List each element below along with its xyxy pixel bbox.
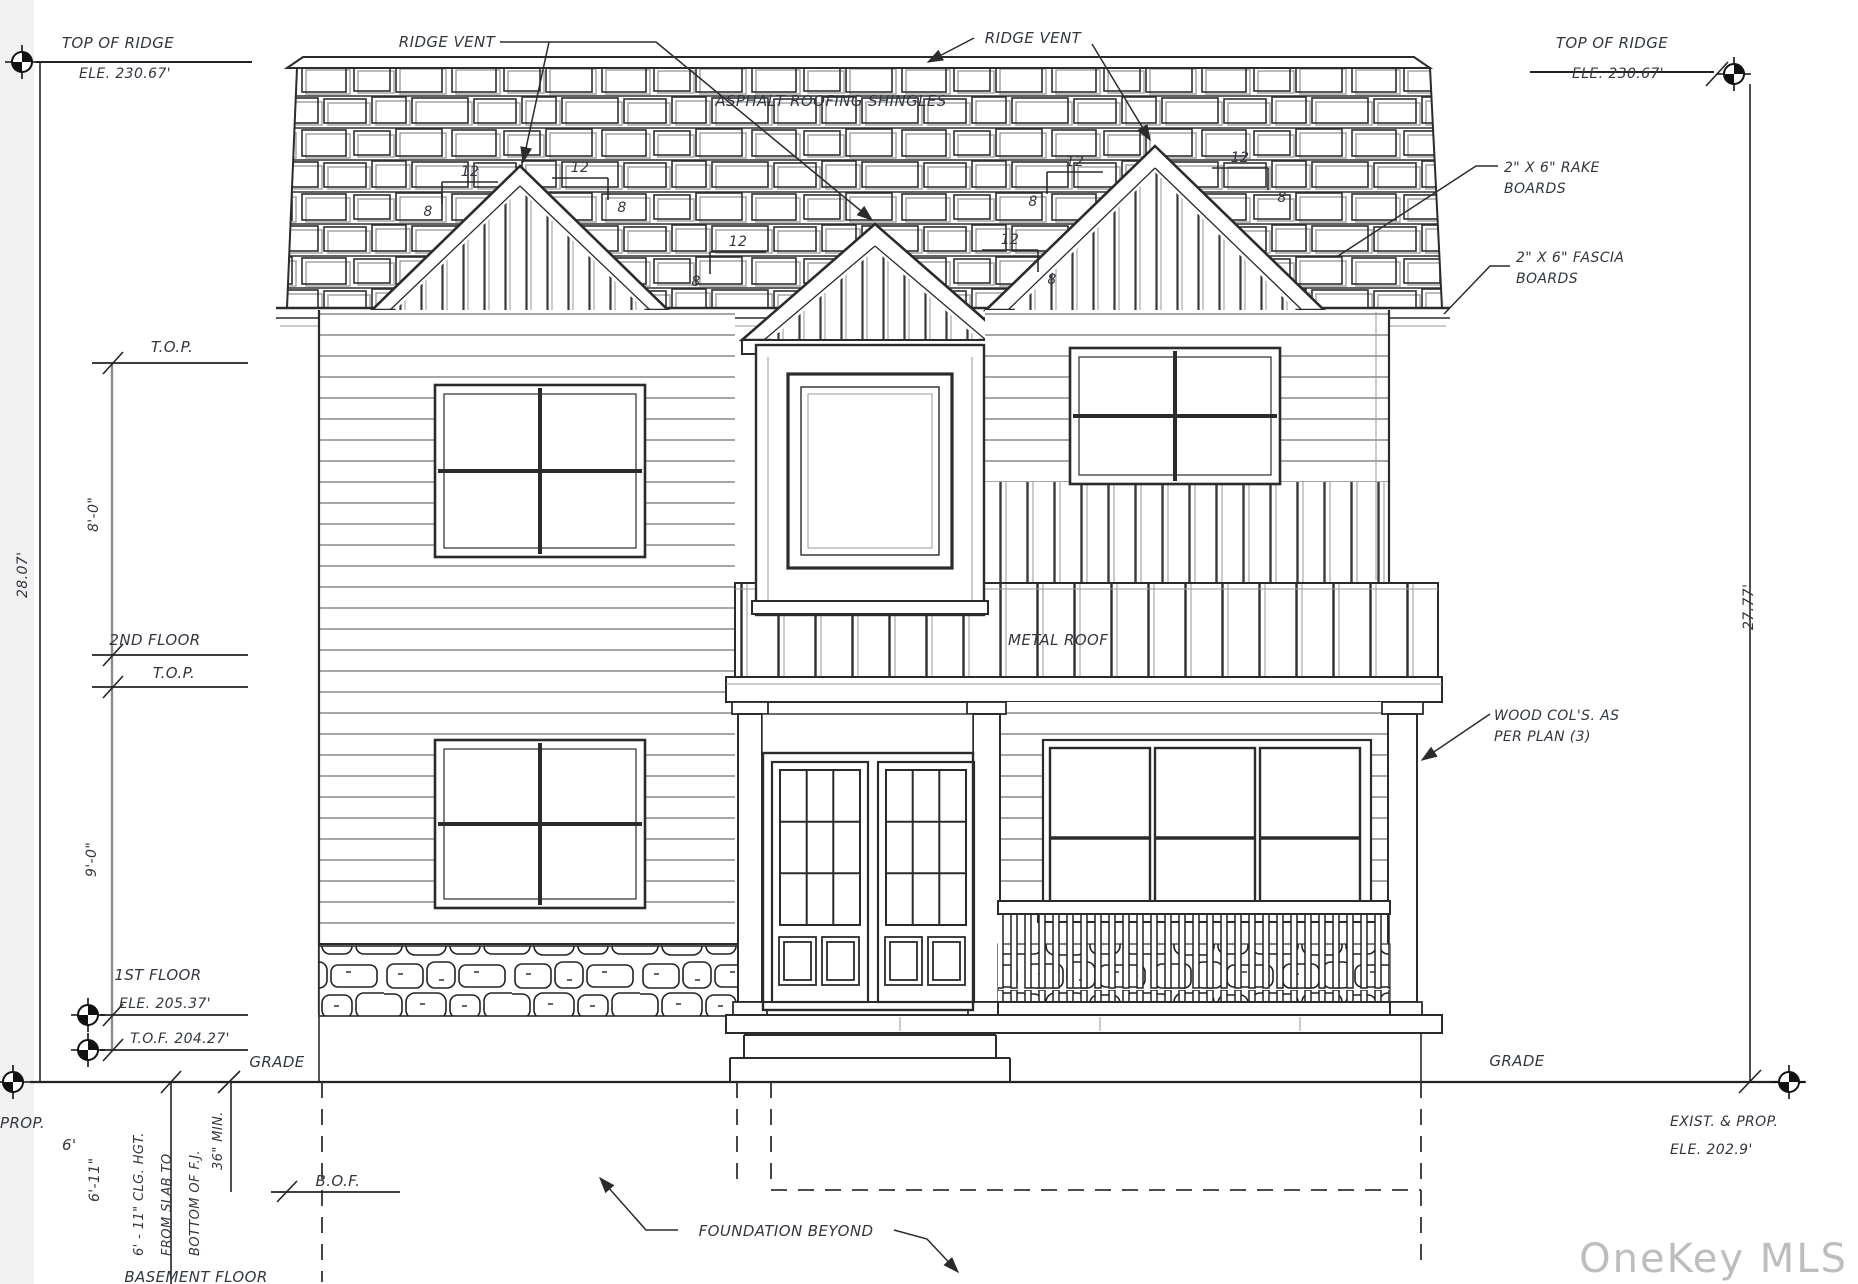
board-batten-siding (985, 482, 1389, 583)
porch-beam (726, 677, 1442, 702)
second-floor-label: 2ND FLOOR (109, 631, 200, 649)
front-elevation-drawing: 12 8 12 8 12 8 12 8 12 8 12 8 RIDGE VENT… (0, 0, 1858, 1284)
slope-run-label: 12 (571, 160, 590, 176)
top-of-ridge-label-right: TOP OF RIDGE (1556, 34, 1668, 52)
wood-columns-label-line1: WOOD COL'S. AS (1494, 708, 1619, 724)
grade-label-left: GRADE (249, 1053, 304, 1071)
second-floor-window-left (435, 385, 645, 557)
first-floor-window-left (435, 740, 645, 908)
ceiling-height-note-line1: 6' - 11" CLG. HGT. (132, 1132, 147, 1256)
metal-roof-label: METAL ROOF (1008, 631, 1108, 649)
slope-rise-label: 8 (691, 274, 700, 290)
ridge-vent-label: RIDGE VENT (399, 33, 497, 51)
basement-floor-label: BASEMENT FLOOR (124, 1268, 267, 1284)
slope-rise-label: 8 (423, 204, 432, 220)
exist-prop-elevation: ELE. 202.9' (1670, 1142, 1753, 1158)
slope-run-label: 12 (461, 164, 480, 180)
prop-elevation-fragment: 6' (62, 1136, 76, 1154)
slope-rise-label: 8 (1047, 272, 1056, 288)
exist-prop-label: EXIST. & PROP. (1670, 1114, 1778, 1130)
top-of-ridge-label: TOP OF RIDGE (62, 34, 174, 52)
ridge-vent-label: RIDGE VENT (985, 29, 1083, 47)
ridge-cap (287, 57, 1430, 68)
prop-label-fragment: PROP. (0, 1114, 45, 1132)
bof-label: B.O.F. (316, 1172, 361, 1190)
foundation-beyond-label: FOUNDATION BEYOND (699, 1222, 874, 1240)
rake-boards-label-line1: 2" X 6" RAKE (1504, 160, 1600, 176)
slope-run-label: 12 (1231, 150, 1250, 166)
second-floor-window-right (1070, 348, 1280, 484)
elevation-drawing-page: 12 8 12 8 12 8 12 8 12 8 12 8 RIDGE VENT… (0, 0, 1858, 1284)
fascia-boards-label-line2: BOARDS (1516, 271, 1578, 287)
slope-rise-label: 8 (617, 200, 626, 216)
first-floor-elevation: ELE. 205.37' (119, 996, 211, 1012)
asphalt-shingles-label: ASPHALT ROOFING SHINGLES (714, 92, 946, 110)
railing-bottom-rail (998, 1002, 1390, 1015)
rake-boards-label-line2: BOARDS (1504, 181, 1566, 197)
bay-window (752, 345, 988, 615)
triple-window (1038, 740, 1376, 922)
wood-columns-label-line2: PER PLAN (3) (1494, 729, 1591, 745)
stone-veneer-left (319, 946, 738, 1016)
slope-rise-label: 8 (1028, 194, 1037, 210)
entry-door (762, 714, 974, 1010)
top-plate-label: T.O.P. (151, 338, 193, 356)
min-depth-dimension: 36" MIN. (211, 1111, 226, 1170)
slope-run-label: 12 (729, 234, 748, 250)
top-of-ridge-elevation-right: ELE. 230.67' (1572, 66, 1664, 82)
grade-label-right: GRADE (1489, 1052, 1544, 1070)
slope-rise-label: 8 (1277, 190, 1286, 206)
watermark: OneKey MLS (1579, 1236, 1848, 1282)
top-plate-label: T.O.P. (153, 664, 195, 682)
slope-run-label: 12 (1001, 232, 1020, 248)
overall-height-dimension-left: 28.07' (15, 552, 31, 598)
first-floor-label: 1ST FLOOR (114, 966, 201, 984)
ceiling-height-note-line2: FROM SLAB TO (160, 1153, 175, 1256)
second-floor-height-dimension: 8'-0" (86, 497, 102, 532)
first-floor-height-dimension: 9'-0" (84, 842, 100, 877)
basement-height-dimension: 6'-11" (87, 1158, 103, 1202)
railing-top-rail (998, 901, 1390, 914)
ceiling-height-note-line3: BOTTOM OF F.J. (188, 1150, 203, 1256)
balusters (998, 914, 1390, 1002)
overall-height-dimension-right: 27.77' (1741, 584, 1757, 630)
slope-run-label: 12 (1066, 154, 1085, 170)
top-of-ridge-elevation: ELE. 230.67' (79, 66, 171, 82)
fascia-boards-label-line1: 2" X 6" FASCIA (1516, 250, 1624, 266)
tof-label: T.O.F. 204.27' (130, 1031, 230, 1047)
porch-railing (998, 901, 1390, 1015)
